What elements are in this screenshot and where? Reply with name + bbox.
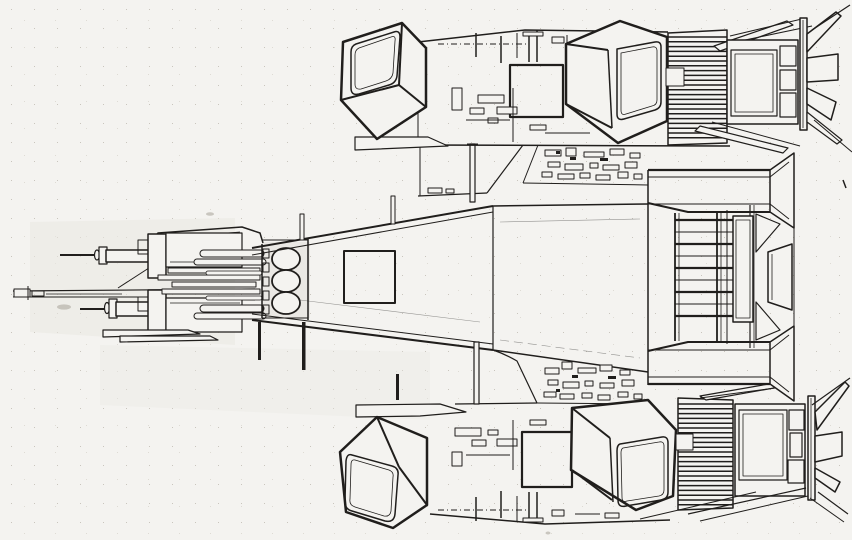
cargo-cube-lower-right — [571, 400, 676, 510]
cargo-cube-upper-left — [341, 23, 426, 139]
cargo-cube-lower-left — [340, 417, 427, 528]
schematic-canvas — [0, 0, 852, 540]
stern-ladder — [675, 180, 846, 348]
scanned-schematic-page — [0, 0, 852, 540]
upper-deck-greebles — [418, 144, 648, 202]
greeble-field-lower — [544, 362, 642, 400]
cargo-cube-upper-right — [566, 21, 667, 143]
radiator-lower — [676, 398, 733, 510]
